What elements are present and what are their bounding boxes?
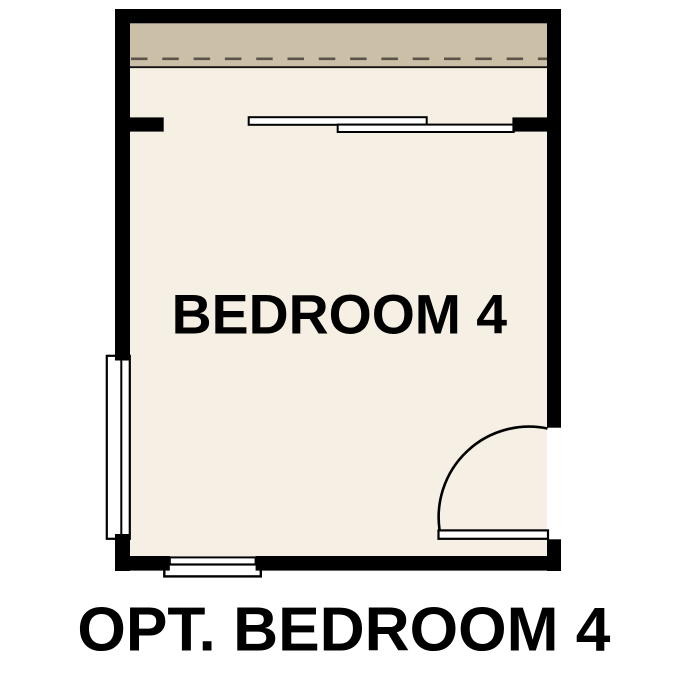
svg-text:BEDROOM 4: BEDROOM 4 bbox=[172, 283, 508, 345]
svg-text:OPT. BEDROOM 4: OPT. BEDROOM 4 bbox=[77, 595, 610, 664]
